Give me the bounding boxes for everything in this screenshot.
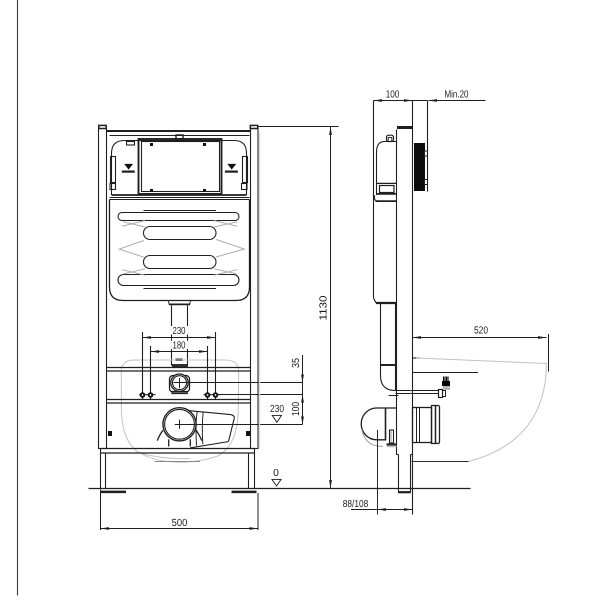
svg-text:500: 500 [172,518,188,529]
svg-text:230: 230 [270,404,284,415]
svg-text:100: 100 [386,89,400,100]
svg-text:88/108: 88/108 [343,499,369,510]
svg-text:180: 180 [173,341,186,352]
svg-text:1130: 1130 [319,295,330,320]
svg-text:Min.20: Min.20 [445,89,469,100]
svg-text:100: 100 [291,402,302,416]
svg-text:35: 35 [291,358,302,368]
svg-text:0: 0 [273,468,279,479]
svg-text:520: 520 [474,326,488,337]
svg-text:230: 230 [173,326,186,337]
